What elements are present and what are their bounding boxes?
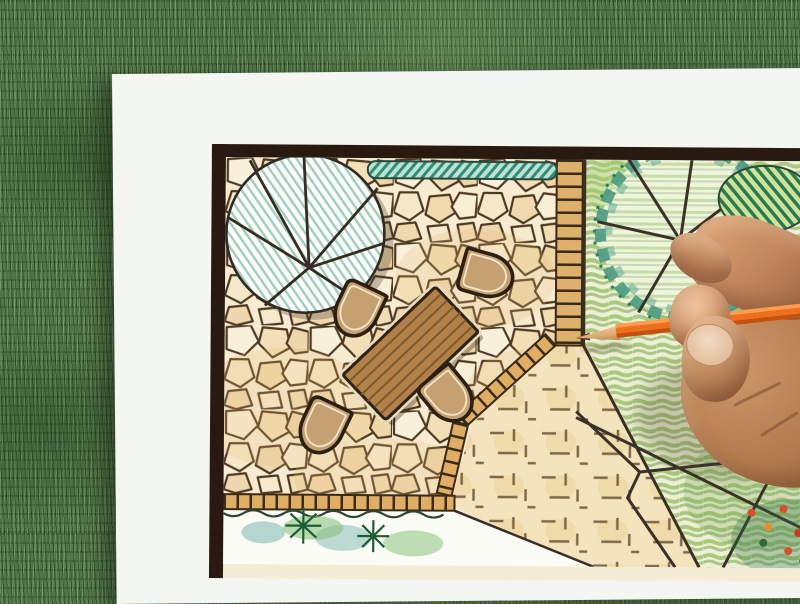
tile-edging-horizontal (223, 494, 454, 511)
hedge-row (368, 161, 557, 179)
tile-edging-vertical (556, 159, 583, 345)
